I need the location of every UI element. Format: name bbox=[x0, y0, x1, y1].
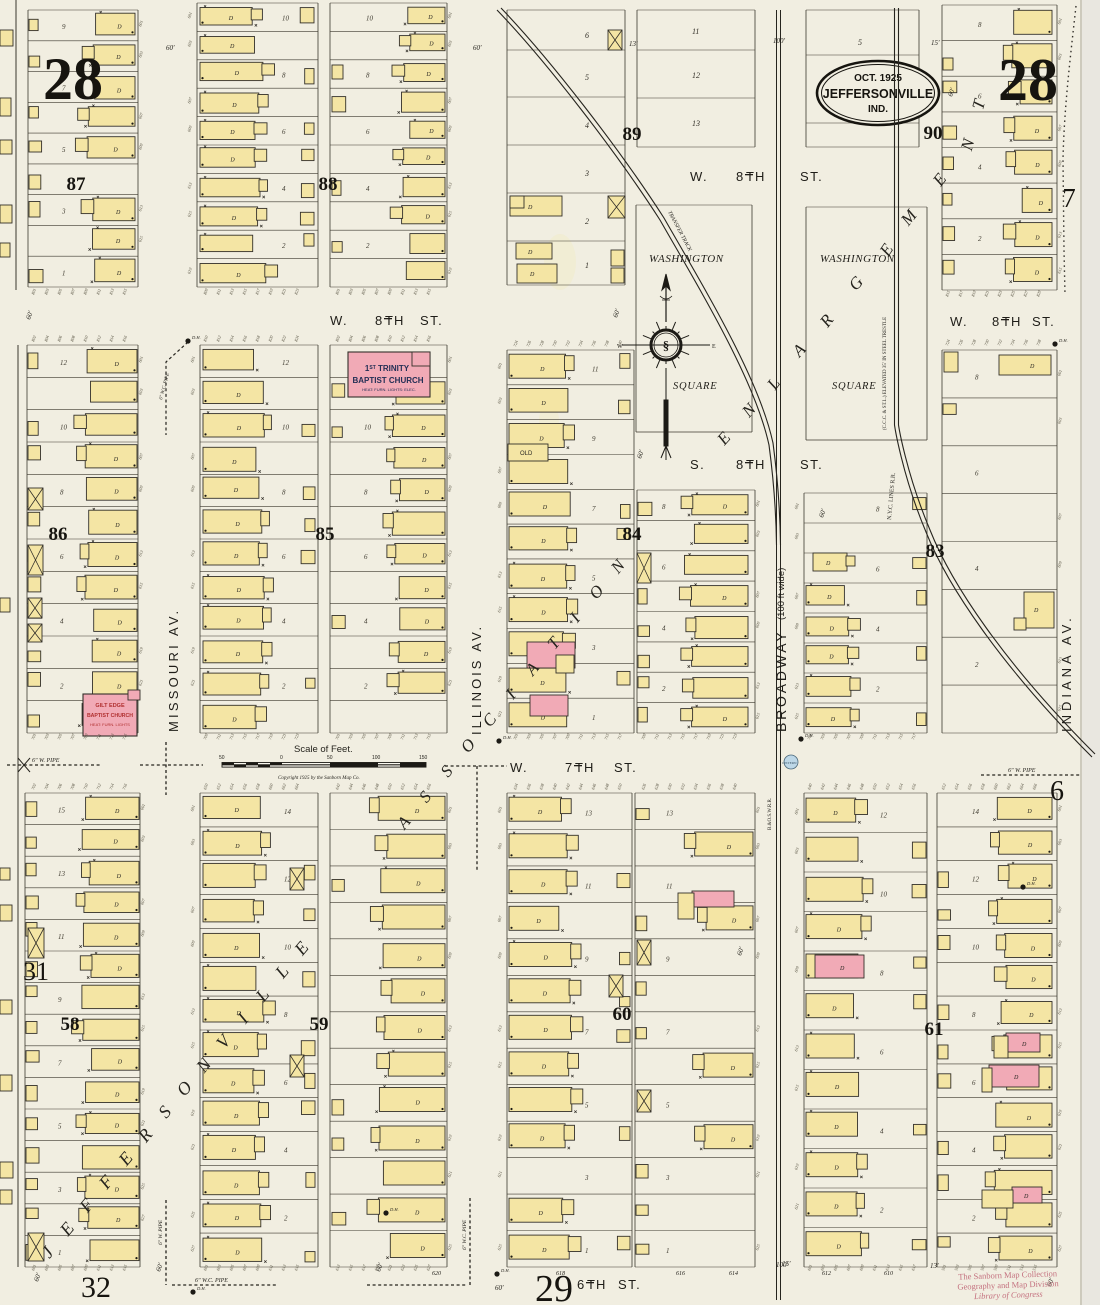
svg-text:D: D bbox=[1034, 270, 1040, 276]
svg-text:W.: W. bbox=[330, 313, 348, 328]
svg-text:100: 100 bbox=[372, 755, 381, 761]
svg-text:D: D bbox=[731, 919, 737, 925]
svg-text:D: D bbox=[234, 808, 240, 814]
svg-text:85: 85 bbox=[316, 524, 335, 545]
svg-text:D: D bbox=[230, 1082, 236, 1088]
svg-text:D: D bbox=[833, 1166, 839, 1172]
svg-text:D.H.: D.H. bbox=[502, 735, 512, 740]
svg-text:D: D bbox=[117, 621, 123, 627]
svg-text:12: 12 bbox=[692, 71, 700, 80]
svg-text:D: D bbox=[113, 457, 119, 463]
svg-text:D: D bbox=[234, 844, 240, 850]
svg-text:2: 2 bbox=[972, 1214, 976, 1222]
svg-text:6: 6 bbox=[876, 566, 880, 574]
svg-text:D: D bbox=[535, 919, 541, 925]
svg-text:D: D bbox=[425, 72, 431, 78]
svg-text:D.H.: D.H. bbox=[500, 1268, 510, 1273]
svg-text:D: D bbox=[428, 42, 434, 48]
svg-text:D: D bbox=[1026, 1116, 1032, 1122]
svg-text:7: 7 bbox=[585, 1028, 589, 1036]
svg-text:D: D bbox=[542, 992, 548, 998]
svg-text:12: 12 bbox=[282, 359, 290, 367]
svg-text:D: D bbox=[113, 489, 119, 495]
svg-text:D: D bbox=[1030, 978, 1036, 984]
svg-text:28: 28 bbox=[998, 47, 1058, 113]
svg-text:D: D bbox=[833, 1125, 839, 1131]
svg-text:D: D bbox=[1034, 163, 1040, 169]
svg-text:4: 4 bbox=[972, 1147, 976, 1155]
svg-text:D: D bbox=[529, 272, 535, 278]
svg-text:9: 9 bbox=[585, 956, 589, 964]
svg-text:D: D bbox=[415, 882, 421, 888]
svg-text:8: 8 bbox=[978, 21, 982, 29]
svg-text:E: E bbox=[712, 344, 716, 350]
svg-text:5: 5 bbox=[585, 1101, 589, 1109]
svg-text:Scale of Feet.: Scale of Feet. bbox=[294, 744, 353, 755]
svg-text:1: 1 bbox=[585, 261, 589, 270]
svg-text:D: D bbox=[233, 1184, 239, 1190]
svg-text:2: 2 bbox=[585, 217, 589, 226]
svg-text:D: D bbox=[116, 685, 122, 691]
svg-text:D: D bbox=[726, 845, 732, 851]
svg-text:D: D bbox=[722, 505, 728, 511]
svg-text:D: D bbox=[1034, 235, 1040, 241]
svg-text:D: D bbox=[828, 654, 834, 660]
svg-text:2: 2 bbox=[282, 242, 286, 250]
svg-text:4: 4 bbox=[585, 121, 589, 130]
svg-text:D.H.: D.H. bbox=[389, 1207, 399, 1212]
svg-text:90: 90 bbox=[924, 123, 943, 144]
svg-text:7: 7 bbox=[1062, 183, 1076, 213]
svg-text:8: 8 bbox=[662, 503, 666, 511]
svg-text:5: 5 bbox=[666, 1101, 670, 1109]
svg-text:8: 8 bbox=[880, 970, 884, 978]
svg-text:2: 2 bbox=[662, 685, 666, 693]
svg-text:6: 6 bbox=[880, 1049, 884, 1057]
svg-text:D: D bbox=[235, 652, 241, 658]
svg-text:616: 616 bbox=[676, 1271, 685, 1277]
svg-text:8: 8 bbox=[975, 374, 979, 382]
svg-text:D: D bbox=[233, 1114, 239, 1120]
svg-text:10: 10 bbox=[880, 891, 888, 899]
svg-text:D: D bbox=[235, 618, 241, 624]
svg-text:13: 13 bbox=[666, 810, 674, 818]
svg-text:2: 2 bbox=[978, 235, 982, 243]
svg-text:WASHINGTON: WASHINGTON bbox=[649, 253, 724, 265]
svg-text:SQUARE: SQUARE bbox=[832, 381, 876, 392]
svg-text:D: D bbox=[115, 55, 121, 61]
svg-text:D: D bbox=[836, 927, 842, 933]
svg-text:3: 3 bbox=[584, 169, 589, 178]
svg-text:6″ W.C. PIPE: 6″ W.C. PIPE bbox=[462, 1219, 468, 1250]
svg-text:D: D bbox=[233, 554, 239, 560]
svg-text:10: 10 bbox=[282, 15, 290, 23]
svg-text:4: 4 bbox=[366, 185, 370, 193]
svg-text:D: D bbox=[834, 1085, 840, 1091]
svg-text:3: 3 bbox=[57, 1186, 62, 1194]
svg-text:6: 6 bbox=[975, 469, 979, 477]
svg-text:6: 6 bbox=[282, 553, 286, 561]
svg-text:S.: S. bbox=[690, 457, 705, 472]
svg-text:D: D bbox=[414, 1139, 420, 1145]
svg-text:IND.: IND. bbox=[868, 104, 888, 115]
svg-text:D.H.: D.H. bbox=[191, 335, 201, 340]
svg-text:D: D bbox=[233, 488, 239, 494]
svg-text:D.H.: D.H. bbox=[1058, 338, 1068, 343]
svg-text:D: D bbox=[423, 588, 429, 594]
svg-text:6″ W. PIPE: 6″ W. PIPE bbox=[158, 1219, 164, 1245]
svg-text:D: D bbox=[543, 955, 549, 961]
svg-text:1: 1 bbox=[62, 269, 66, 277]
svg-text:D: D bbox=[117, 1060, 123, 1066]
svg-text:87: 87 bbox=[67, 174, 87, 195]
svg-text:2: 2 bbox=[364, 682, 368, 690]
svg-text:10: 10 bbox=[60, 424, 68, 432]
svg-text:W.: W. bbox=[510, 760, 528, 775]
svg-text:5: 5 bbox=[62, 146, 66, 154]
svg-text:D: D bbox=[116, 966, 122, 972]
svg-text:D: D bbox=[234, 1216, 240, 1222]
svg-text:D: D bbox=[423, 652, 429, 658]
svg-text:W.: W. bbox=[690, 169, 708, 184]
svg-text:8: 8 bbox=[282, 71, 286, 79]
svg-text:D: D bbox=[427, 15, 433, 21]
svg-text:32: 32 bbox=[81, 1271, 111, 1304]
svg-text:6: 6 bbox=[662, 564, 666, 572]
svg-text:89: 89 bbox=[623, 124, 642, 145]
svg-text:5: 5 bbox=[858, 38, 862, 47]
svg-text:D: D bbox=[115, 239, 121, 245]
svg-text:D: D bbox=[839, 966, 845, 972]
svg-text:11: 11 bbox=[585, 883, 591, 891]
svg-text:11: 11 bbox=[666, 883, 672, 891]
svg-text:D: D bbox=[234, 1250, 240, 1256]
svg-text:D: D bbox=[428, 129, 434, 135]
svg-text:10: 10 bbox=[282, 424, 290, 432]
svg-text:D: D bbox=[1013, 1075, 1019, 1081]
svg-text:2: 2 bbox=[282, 682, 286, 690]
svg-text:D: D bbox=[730, 1138, 736, 1144]
svg-text:D: D bbox=[1023, 1194, 1029, 1200]
svg-text:D: D bbox=[112, 839, 118, 845]
svg-text:D: D bbox=[231, 103, 237, 109]
svg-text:D: D bbox=[236, 426, 242, 432]
svg-text:10: 10 bbox=[364, 424, 372, 432]
svg-text:6: 6 bbox=[1050, 776, 1064, 807]
svg-text:D.H.: D.H. bbox=[804, 733, 814, 738]
svg-text:INDIANA AV.: INDIANA AV. bbox=[1059, 614, 1074, 732]
svg-text:ST.: ST. bbox=[800, 457, 823, 472]
svg-text:D: D bbox=[425, 156, 431, 162]
svg-text:D: D bbox=[1033, 608, 1039, 614]
svg-text:100′: 100′ bbox=[773, 37, 786, 45]
svg-text:D: D bbox=[231, 216, 237, 222]
svg-text:7: 7 bbox=[58, 1059, 62, 1067]
svg-text:6: 6 bbox=[577, 1277, 586, 1292]
svg-text:D: D bbox=[541, 1248, 547, 1254]
svg-text:12: 12 bbox=[60, 359, 68, 367]
svg-text:H: H bbox=[1011, 314, 1022, 329]
svg-text:5: 5 bbox=[58, 1123, 62, 1131]
svg-text:0: 0 bbox=[280, 755, 283, 761]
svg-text:6″ W.C. PIPE: 6″ W.C. PIPE bbox=[195, 1278, 228, 1284]
svg-text:D: D bbox=[539, 681, 545, 687]
svg-text:9: 9 bbox=[62, 23, 66, 31]
svg-text:4: 4 bbox=[978, 164, 982, 172]
svg-text:D: D bbox=[540, 401, 546, 407]
svg-text:D: D bbox=[231, 460, 237, 466]
svg-text:D: D bbox=[114, 1188, 120, 1194]
svg-text:50: 50 bbox=[327, 755, 333, 761]
svg-text:2: 2 bbox=[880, 1207, 884, 1215]
svg-text:15′: 15′ bbox=[782, 1260, 791, 1268]
svg-text:OLD: OLD bbox=[520, 451, 533, 457]
svg-text:4: 4 bbox=[364, 618, 368, 626]
svg-text:8: 8 bbox=[60, 488, 64, 496]
svg-text:D: D bbox=[836, 1245, 842, 1251]
svg-text:28: 28 bbox=[43, 46, 103, 112]
svg-text:D: D bbox=[420, 426, 426, 432]
svg-text:OCT. 1925: OCT. 1925 bbox=[854, 73, 902, 84]
svg-text:D: D bbox=[541, 1065, 547, 1071]
svg-text:HEAT: FURN. LIGHTS: ELEC.: HEAT: FURN. LIGHTS: ELEC. bbox=[362, 387, 416, 392]
svg-text:D: D bbox=[537, 810, 543, 816]
svg-text:D: D bbox=[414, 809, 420, 815]
svg-text:60′: 60′ bbox=[495, 1284, 504, 1292]
svg-text:D: D bbox=[113, 902, 119, 908]
svg-text:15′: 15′ bbox=[931, 39, 940, 47]
svg-text:D: D bbox=[114, 1092, 120, 1098]
svg-text:612: 612 bbox=[822, 1271, 831, 1277]
svg-text:4: 4 bbox=[662, 624, 666, 632]
svg-text:(C.C.C. & ST.L.) ELEVATED 35′: (C.C.C. & ST.L.) ELEVATED 35′ IN STEEL T… bbox=[883, 317, 888, 430]
svg-text:ST.: ST. bbox=[618, 1277, 641, 1292]
svg-text:88: 88 bbox=[319, 174, 338, 195]
svg-text:3: 3 bbox=[665, 1174, 670, 1182]
svg-text:D: D bbox=[235, 393, 241, 399]
svg-text:4: 4 bbox=[975, 565, 979, 573]
svg-text:D: D bbox=[730, 1066, 736, 1072]
svg-text:D: D bbox=[540, 716, 546, 722]
svg-text:614: 614 bbox=[729, 1270, 738, 1277]
svg-text:H: H bbox=[755, 457, 766, 472]
svg-text:8: 8 bbox=[282, 488, 286, 496]
svg-text:Copyright 1925 by the Sanborn: Copyright 1925 by the Sanborn Map Co. bbox=[278, 776, 360, 781]
svg-text:D: D bbox=[1028, 1013, 1034, 1019]
svg-text:4: 4 bbox=[282, 185, 286, 193]
svg-text:D: D bbox=[538, 1211, 544, 1217]
svg-text:7: 7 bbox=[565, 760, 574, 775]
svg-text:SQUARE: SQUARE bbox=[673, 381, 717, 392]
svg-text:D: D bbox=[540, 539, 546, 545]
svg-text:2: 2 bbox=[876, 686, 880, 694]
svg-text:11: 11 bbox=[58, 933, 64, 941]
svg-text:5: 5 bbox=[585, 73, 589, 82]
svg-text:8: 8 bbox=[284, 1011, 288, 1019]
svg-text:59: 59 bbox=[310, 1014, 329, 1035]
svg-text:84: 84 bbox=[623, 524, 643, 545]
svg-text:§: § bbox=[663, 338, 670, 353]
svg-text:D: D bbox=[229, 44, 235, 50]
svg-text:D: D bbox=[235, 273, 241, 279]
svg-text:D: D bbox=[115, 210, 121, 216]
svg-text:4: 4 bbox=[282, 618, 286, 626]
svg-text:3: 3 bbox=[584, 1174, 589, 1182]
svg-text:4: 4 bbox=[876, 626, 880, 634]
svg-text:8: 8 bbox=[364, 488, 368, 496]
svg-text:8: 8 bbox=[876, 506, 880, 514]
svg-text:D: D bbox=[231, 718, 237, 724]
svg-text:H: H bbox=[596, 1277, 607, 1292]
svg-text:3: 3 bbox=[61, 208, 66, 216]
svg-text:D: D bbox=[538, 436, 544, 442]
svg-text:13: 13 bbox=[585, 810, 593, 818]
svg-text:8: 8 bbox=[972, 1011, 976, 1019]
svg-text:MISSOURI AV.: MISSOURI AV. bbox=[166, 608, 181, 732]
svg-text:1: 1 bbox=[585, 1247, 589, 1255]
svg-text:W.: W. bbox=[950, 314, 968, 329]
svg-text:ST.: ST. bbox=[614, 760, 637, 775]
svg-text:D: D bbox=[232, 1045, 238, 1051]
svg-text:D: D bbox=[833, 1205, 839, 1211]
svg-text:D: D bbox=[114, 362, 120, 368]
svg-text:ST.: ST. bbox=[420, 313, 443, 328]
svg-text:D: D bbox=[421, 458, 427, 464]
svg-text:13: 13 bbox=[692, 119, 700, 128]
svg-text:BAPTIST CHURCH: BAPTIST CHURCH bbox=[87, 713, 133, 719]
svg-text:D: D bbox=[229, 130, 235, 136]
svg-text:D: D bbox=[113, 935, 119, 941]
svg-text:12: 12 bbox=[972, 876, 980, 884]
svg-text:D: D bbox=[416, 957, 422, 963]
svg-text:3: 3 bbox=[591, 644, 596, 652]
svg-text:D: D bbox=[114, 809, 120, 815]
svg-text:D: D bbox=[112, 148, 118, 154]
svg-text:D: D bbox=[116, 271, 122, 277]
svg-text:9: 9 bbox=[58, 996, 62, 1004]
svg-text:D: D bbox=[116, 88, 122, 94]
svg-text:8: 8 bbox=[375, 313, 384, 328]
svg-text:4: 4 bbox=[60, 618, 64, 626]
svg-text:D: D bbox=[826, 595, 832, 601]
svg-text:BROADWAY: BROADWAY bbox=[773, 629, 789, 732]
svg-text:D: D bbox=[114, 1124, 120, 1130]
svg-text:D: D bbox=[116, 874, 122, 880]
svg-text:58: 58 bbox=[61, 1014, 80, 1035]
svg-text:4: 4 bbox=[284, 1147, 288, 1155]
svg-text:D: D bbox=[1027, 1249, 1033, 1255]
svg-text:D: D bbox=[229, 157, 235, 163]
svg-text:GILT EDGE: GILT EDGE bbox=[95, 703, 125, 709]
svg-text:D: D bbox=[1026, 809, 1032, 815]
svg-text:9: 9 bbox=[592, 435, 596, 443]
svg-text:D: D bbox=[527, 205, 533, 211]
svg-text:D: D bbox=[114, 523, 120, 529]
svg-text:D: D bbox=[1038, 201, 1044, 207]
svg-text:83: 83 bbox=[926, 541, 945, 562]
svg-text:D: D bbox=[1030, 946, 1036, 952]
svg-text:D: D bbox=[425, 214, 431, 220]
svg-text:60: 60 bbox=[613, 1004, 632, 1025]
svg-text:9: 9 bbox=[666, 956, 670, 964]
svg-text:D: D bbox=[234, 71, 240, 77]
svg-text:D: D bbox=[540, 577, 546, 583]
svg-text:618: 618 bbox=[556, 1271, 565, 1277]
svg-text:D.H.: D.H. bbox=[1026, 881, 1036, 886]
svg-text:6: 6 bbox=[585, 31, 589, 40]
svg-text:BAPTIST CHURCH: BAPTIST CHURCH bbox=[352, 376, 423, 385]
svg-text:60′: 60′ bbox=[166, 44, 175, 52]
svg-text:6: 6 bbox=[366, 128, 370, 136]
svg-text:14: 14 bbox=[972, 808, 980, 816]
svg-text:31: 31 bbox=[23, 957, 49, 986]
svg-text:6: 6 bbox=[972, 1079, 976, 1087]
svg-text:D: D bbox=[829, 626, 835, 632]
svg-text:2: 2 bbox=[366, 242, 370, 250]
svg-text:H: H bbox=[394, 313, 405, 328]
svg-text:D: D bbox=[540, 883, 546, 889]
svg-text:D: D bbox=[233, 946, 239, 952]
svg-text:13: 13 bbox=[58, 870, 66, 878]
svg-text:D: D bbox=[236, 588, 242, 594]
svg-text:10: 10 bbox=[366, 15, 374, 23]
svg-text:CISTERN: CISTERN bbox=[782, 761, 797, 765]
svg-text:D: D bbox=[540, 610, 546, 616]
svg-text:1: 1 bbox=[58, 1249, 62, 1257]
svg-text:8: 8 bbox=[736, 169, 745, 184]
svg-text:HEAT: FURN. LIGHTS: HEAT: FURN. LIGHTS bbox=[90, 722, 130, 727]
svg-text:D: D bbox=[424, 619, 430, 625]
svg-text:13′: 13′ bbox=[930, 1262, 939, 1270]
svg-text:6: 6 bbox=[60, 553, 64, 561]
svg-text:D: D bbox=[1034, 129, 1040, 135]
svg-text:610: 610 bbox=[884, 1271, 893, 1277]
svg-text:D: D bbox=[539, 367, 545, 373]
svg-text:6: 6 bbox=[284, 1079, 288, 1087]
svg-text:150: 150 bbox=[419, 755, 428, 761]
svg-text:D: D bbox=[113, 588, 119, 594]
svg-text:8: 8 bbox=[992, 314, 1001, 329]
svg-text:8: 8 bbox=[366, 71, 370, 79]
svg-text:D: D bbox=[231, 1148, 237, 1154]
svg-text:14: 14 bbox=[284, 808, 292, 816]
svg-text:D: D bbox=[542, 1028, 548, 1034]
svg-text:H: H bbox=[584, 760, 595, 775]
svg-text:D: D bbox=[1029, 364, 1035, 370]
svg-text:D: D bbox=[417, 1028, 423, 1034]
svg-text:D: D bbox=[832, 811, 838, 817]
svg-text:D: D bbox=[1021, 1042, 1027, 1048]
svg-text:8: 8 bbox=[736, 457, 745, 472]
svg-text:D: D bbox=[825, 561, 831, 567]
svg-text:29: 29 bbox=[535, 1268, 573, 1305]
svg-text:7: 7 bbox=[592, 505, 596, 513]
svg-text:D: D bbox=[539, 1137, 545, 1143]
svg-text:4: 4 bbox=[880, 1128, 884, 1136]
svg-text:ST.: ST. bbox=[800, 169, 823, 184]
svg-text:D: D bbox=[721, 596, 727, 602]
svg-text:86: 86 bbox=[49, 524, 68, 545]
svg-text:D: D bbox=[831, 1007, 837, 1013]
svg-text:D: D bbox=[116, 24, 122, 30]
svg-text:12: 12 bbox=[880, 812, 888, 820]
svg-text:D: D bbox=[115, 1218, 121, 1224]
svg-text:JEFFERSONVILLE: JEFFERSONVILLE bbox=[823, 87, 933, 101]
svg-text:50: 50 bbox=[219, 755, 225, 761]
svg-text:D: D bbox=[722, 717, 728, 723]
svg-text:D: D bbox=[424, 490, 430, 496]
svg-text:D: D bbox=[527, 250, 533, 256]
